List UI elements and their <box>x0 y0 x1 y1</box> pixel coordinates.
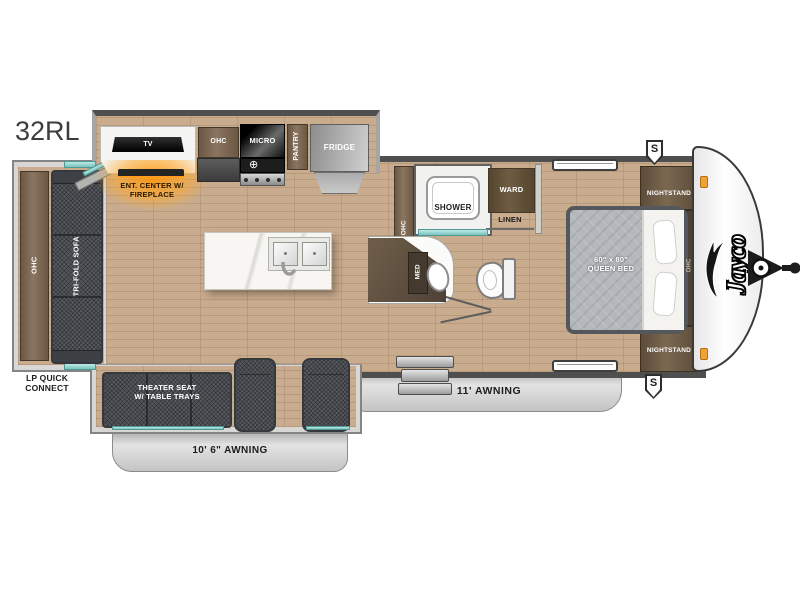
clearance-light-bottom <box>700 348 708 360</box>
floorplan-canvas: 32RL 11' AWNING 10' 6" AWNING OHC TRI-FO… <box>0 0 800 600</box>
burner-icon: ⊕ <box>249 159 258 172</box>
bed-pillow-1 <box>652 219 678 265</box>
microwave: MICRO <box>240 124 285 158</box>
marker-top-label: S <box>646 143 663 155</box>
wardrobe: WARD <box>488 168 535 213</box>
kitchen-ohc-cabinet: OHC <box>198 127 239 158</box>
rear-window-bottom <box>64 363 96 370</box>
kitchen-ohc-label: OHC <box>210 138 226 146</box>
chair-window-strip <box>306 426 350 430</box>
shower-label: SHOWER <box>414 203 492 212</box>
living-chair-right <box>302 358 350 432</box>
marker-shield-top: S <box>646 140 663 165</box>
jayco-bird-icon <box>700 238 728 300</box>
pantry-label: PANTRY <box>293 124 301 168</box>
theater-window-strip <box>112 426 224 430</box>
clearance-light-top <box>700 176 708 188</box>
awning-rear: 10' 6" AWNING <box>112 430 348 472</box>
nightstand-top-label: NIGHTSTAND <box>647 190 691 197</box>
fridge: FRIDGE <box>310 124 369 172</box>
linen-label: LINEN <box>486 216 534 225</box>
bath-bedroom-wall <box>535 164 542 234</box>
shower-glass <box>418 229 488 236</box>
oven-front <box>240 173 285 186</box>
shower <box>414 164 492 236</box>
microwave-label: MICRO <box>250 137 276 146</box>
living-chair-left <box>234 358 276 432</box>
marker-bottom-label: S <box>645 377 662 389</box>
entry-step-2 <box>401 369 449 382</box>
bed-pillow-2 <box>652 271 678 317</box>
entry-step-1 <box>396 356 454 368</box>
fireplace <box>118 169 184 178</box>
toilet-tank <box>502 258 516 300</box>
lp-quick-connect-label: LP QUICK CONNECT <box>12 374 82 394</box>
sink-basin-right <box>302 242 327 266</box>
marker-shield-bottom: S <box>645 374 662 399</box>
trifold-sofa-label: TRI-FOLD SOFA <box>73 226 82 306</box>
oven-knobs <box>241 174 284 185</box>
tv: TV <box>112 137 184 152</box>
wardrobe-label: WARD <box>500 186 524 195</box>
rear-ohc-label: OHC <box>31 235 40 295</box>
awning-rear-label: 10' 6" AWNING <box>192 445 267 457</box>
kitchen-counter <box>197 158 240 182</box>
theater-seat-label: THEATER SEAT W/ TABLE TRAYS <box>100 384 234 401</box>
fridge-label: FRIDGE <box>324 143 355 152</box>
ent-center-label: ENT. CENTER W/ FIREPLACE <box>98 182 206 199</box>
shower-pan <box>426 176 480 220</box>
hitch-icon <box>748 248 800 288</box>
faucet-icon <box>280 262 296 280</box>
entry-step-3 <box>398 383 452 395</box>
nightstand-bottom-label: NIGHTSTAND <box>647 347 691 354</box>
nightstand-top: NIGHTSTAND <box>640 166 698 210</box>
island-sink <box>268 237 330 271</box>
med-label: MED <box>414 254 421 290</box>
fridge-counter <box>314 172 365 194</box>
tv-label: TV <box>112 137 184 152</box>
model-label: 32RL <box>15 116 80 147</box>
bedroom-window-bottom <box>552 360 618 372</box>
linen-divider <box>486 228 534 230</box>
bedroom-window-top <box>552 159 618 171</box>
range-stove: ⊕ <box>240 158 285 173</box>
bed-label: 60" x 80" QUEEN BED <box>572 256 650 273</box>
awning-door-label: 11' AWNING <box>457 385 521 397</box>
